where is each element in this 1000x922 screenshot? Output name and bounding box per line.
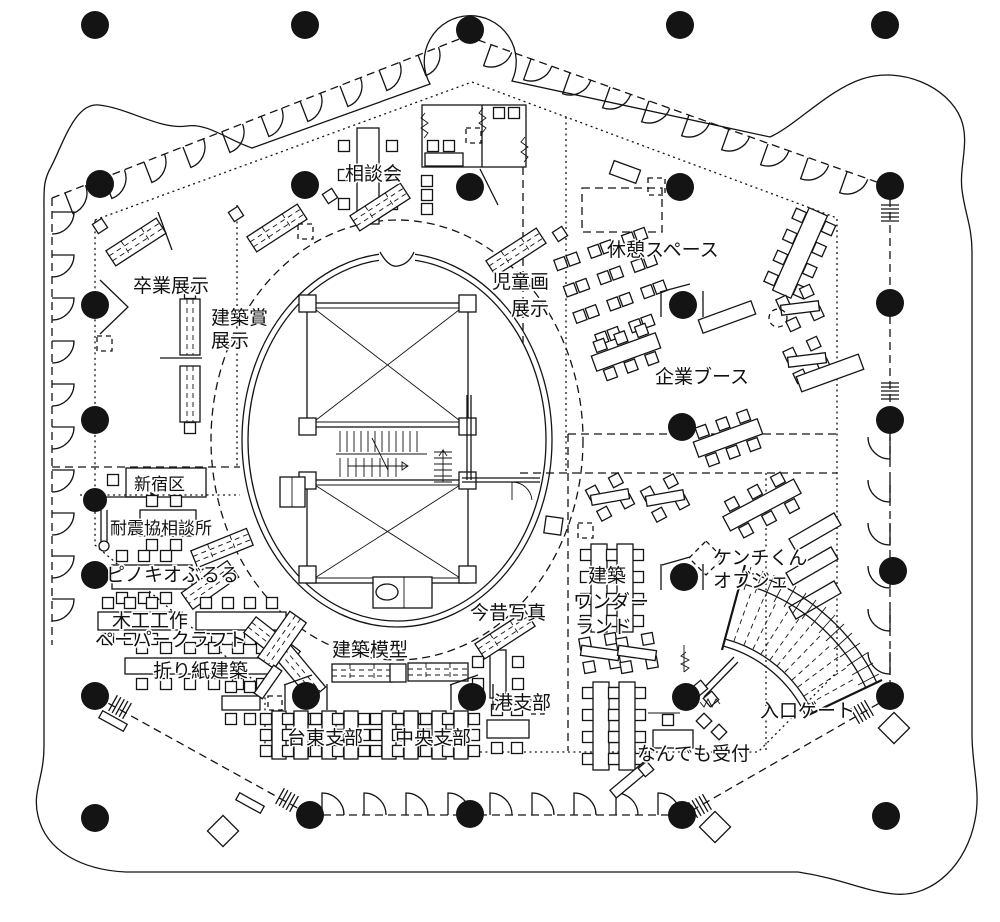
label-konjaku: 今昔写真 (470, 602, 546, 624)
label-kenchikusho-line2: 展示 (211, 331, 249, 352)
label-uketsuke: なんでも受付 (637, 743, 750, 765)
label-gate: 入口ゲート (760, 700, 855, 722)
kigyo-table-1 (587, 321, 665, 383)
label-sotsugyo: 卒業展示 (133, 275, 209, 297)
label-kyukei: 休憩スペース (607, 239, 719, 261)
label-papercraft: ペーパークラフト (95, 629, 247, 651)
label-jido-line1: 児童画 (492, 271, 549, 293)
label-kenchikun-line2: オブジェ (713, 569, 789, 592)
label-kigyo: 企業ブース (655, 365, 749, 388)
kigyo-long-table (762, 203, 838, 303)
core-side-rooms (280, 395, 563, 535)
kenchikusho-panels (160, 288, 202, 434)
label-pinocchio: ピノキオぶるる (106, 565, 239, 586)
label-jido-line2: 展示 (511, 299, 549, 320)
label-sodankai: 相談会 (345, 163, 402, 185)
braced-shaft-lower (299, 472, 476, 583)
label-origami: 折り紙建築 (153, 660, 248, 682)
braced-shaft-upper (299, 295, 476, 435)
kigyo-table-2 (689, 407, 767, 469)
label-mokko: 木工工作 (112, 610, 188, 632)
label-wonder-line1: 建築 (588, 565, 626, 587)
outer-wall (36, 16, 977, 895)
floor-plan-drawing: 相談会 児童画 展示 休憩スペース 企業ブース 卒業展示 建築賞 展示 新宿区 … (0, 0, 1000, 922)
core-stairs (336, 431, 452, 482)
label-taito: 台東支部 (287, 727, 363, 749)
label-mokei: 建築模型 (332, 639, 408, 661)
label-minato: 港支部 (494, 692, 551, 714)
label-chuo: 中央支部 (395, 727, 471, 749)
label-wonder-line3: ランド (575, 617, 632, 638)
wonder-long-table (717, 468, 807, 542)
label-kenchikun-line1: ケンチくん (713, 548, 807, 569)
sotsugyo-exhibit-furniture (92, 169, 567, 434)
label-taishin: 耐震協相談所 (110, 519, 212, 538)
core-toilet (373, 577, 432, 608)
zone-labels: 相談会 児童画 展示 休憩スペース 企業ブース 卒業展示 建築賞 展示 新宿区 … (95, 163, 855, 765)
label-wonder-line2: ワンダー (573, 591, 649, 613)
label-shinjuku: 新宿区 (134, 475, 185, 494)
floor-plan: 相談会 児童画 展示 休憩スペース 企業ブース 卒業展示 建築賞 展示 新宿区 … (0, 0, 1000, 922)
kyukei-kigyo-furniture (554, 161, 864, 469)
sodankai-room (421, 105, 528, 167)
label-kenchikusho-line1: 建築賞 (211, 307, 268, 329)
